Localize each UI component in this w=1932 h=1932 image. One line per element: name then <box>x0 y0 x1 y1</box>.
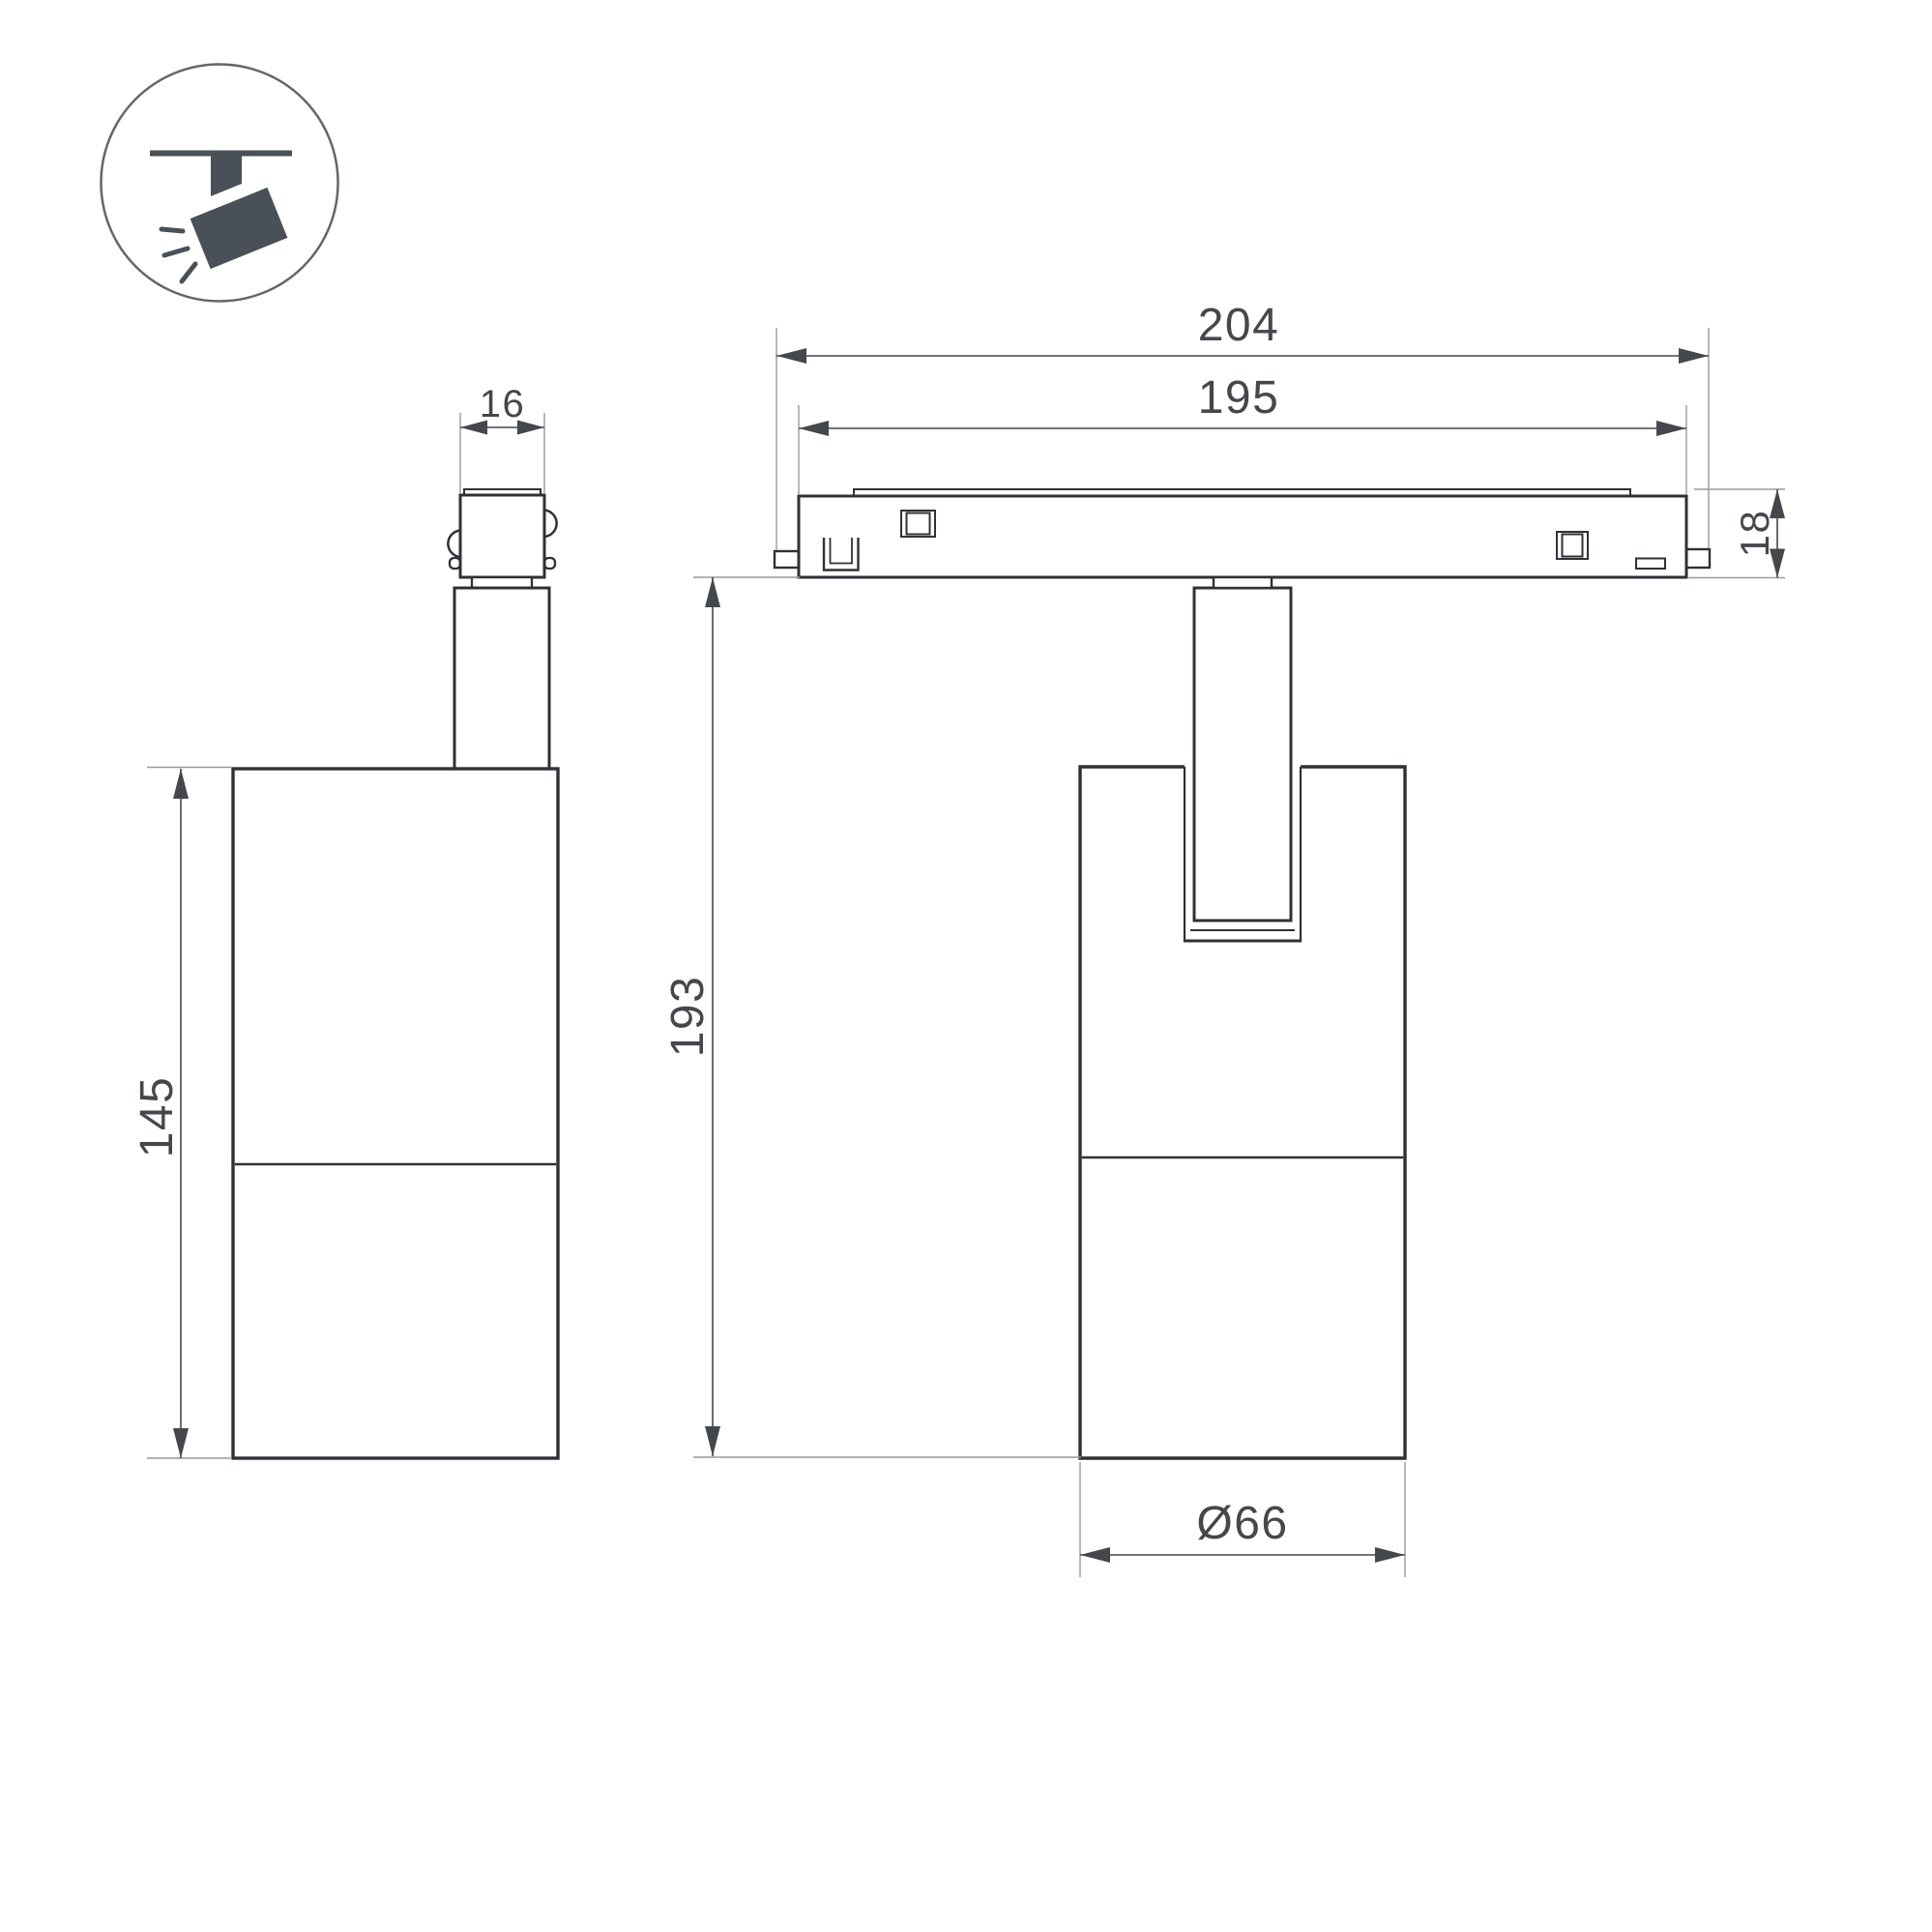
track-spotlight-icon <box>102 65 338 302</box>
arrowhead <box>705 577 720 607</box>
dim-body-height: 145 <box>132 768 232 1459</box>
arrowhead <box>705 1426 720 1456</box>
front-view <box>775 489 1710 1458</box>
dim-label-193: 193 <box>662 976 714 1058</box>
dim-label-16: 16 <box>480 383 526 425</box>
side-connector-clip-right <box>544 511 557 538</box>
ceiling-track-bar <box>150 151 292 157</box>
side-track-connector <box>460 495 544 577</box>
dimension-drawing-page: 16 204 195 18 193 <box>0 0 1932 1932</box>
light-ray-icon <box>161 229 183 231</box>
track-end-tab-left <box>775 551 799 568</box>
track-end-tab-right <box>1686 549 1710 568</box>
side-neck <box>472 577 532 588</box>
side-stem <box>454 588 549 769</box>
side-connector-ear-right <box>544 558 555 569</box>
arrowhead <box>1656 421 1686 436</box>
dim-label-145: 145 <box>132 1076 183 1158</box>
arrowhead <box>776 348 806 364</box>
arrowhead <box>1375 1547 1405 1563</box>
side-lamp-body <box>233 769 558 1458</box>
side-view <box>233 489 558 1458</box>
arrowhead <box>1080 1547 1110 1563</box>
side-connector-clip-left <box>448 531 460 558</box>
dim-connector-width: 16 <box>460 383 544 494</box>
front-stem <box>1194 588 1291 921</box>
front-neck <box>1214 577 1272 588</box>
side-connector-ear-left <box>450 558 460 569</box>
arrowhead <box>173 1428 189 1458</box>
dim-label-204: 204 <box>1198 300 1280 351</box>
arrowhead <box>1679 348 1709 364</box>
arrowhead <box>173 769 189 799</box>
dim-overall-height: 193 <box>662 577 1081 1457</box>
drawing-canvas: 16 204 195 18 193 <box>0 0 1932 1932</box>
dim-label-18: 18 <box>1732 510 1777 558</box>
dim-body-diameter: Ø66 <box>1080 1462 1405 1577</box>
dim-label-diameter: Ø66 <box>1196 1498 1288 1549</box>
dim-track-body: 195 <box>799 372 1686 495</box>
dim-label-195: 195 <box>1198 372 1280 424</box>
arrowhead <box>799 421 829 436</box>
